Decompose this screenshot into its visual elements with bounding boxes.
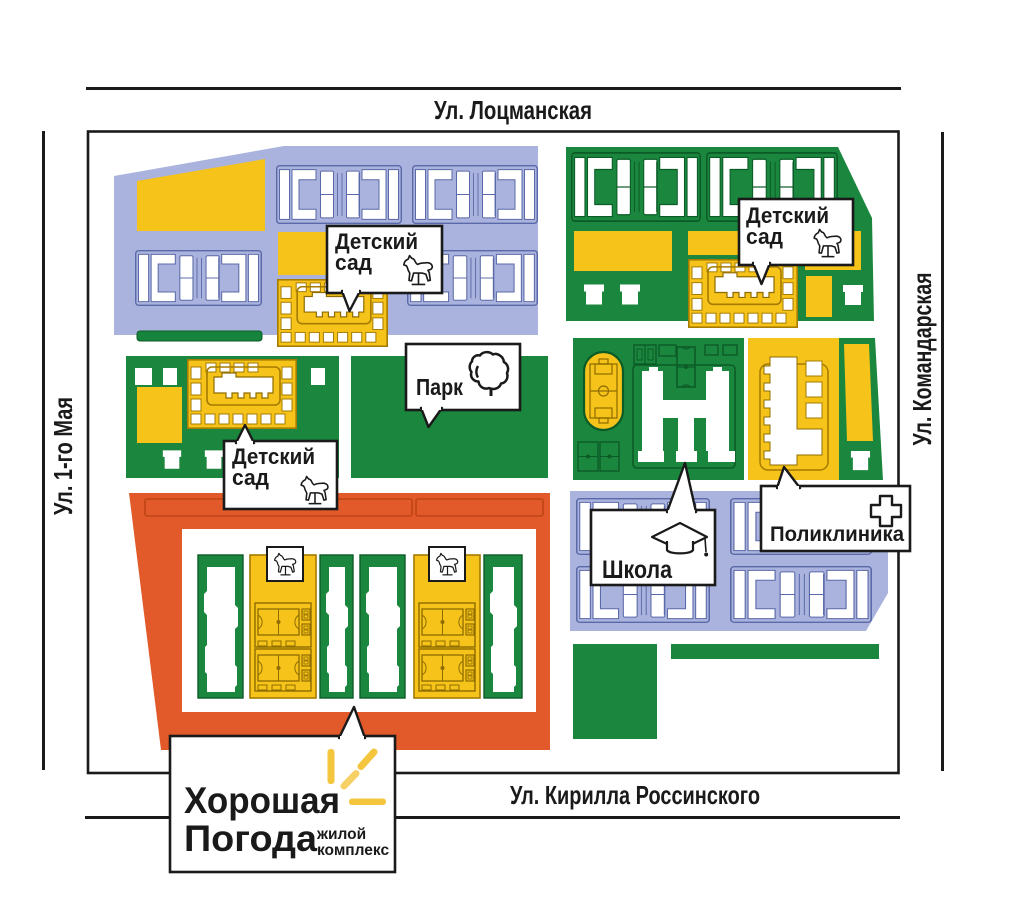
svg-text:сад: сад [746,224,783,249]
svg-text:Ул. Кирилла Россинского: Ул. Кирилла Россинского [510,780,760,810]
svg-text:Парк: Парк [416,374,463,400]
svg-text:жилой: жилой [316,826,366,843]
svg-text:Хорошая: Хорошая [184,780,340,821]
svg-text:Ул. Лоцманская: Ул. Лоцманская [434,95,592,125]
svg-text:Ул. Командарская: Ул. Командарская [907,273,937,446]
svg-text:Ул. 1-го Мая: Ул. 1-го Мая [48,397,78,515]
svg-text:Школа: Школа [602,556,673,584]
svg-text:сад: сад [232,465,269,490]
svg-text:комплекс: комплекс [317,842,389,859]
svg-text:Погода: Погода [184,818,317,859]
svg-text:сад: сад [335,250,372,275]
